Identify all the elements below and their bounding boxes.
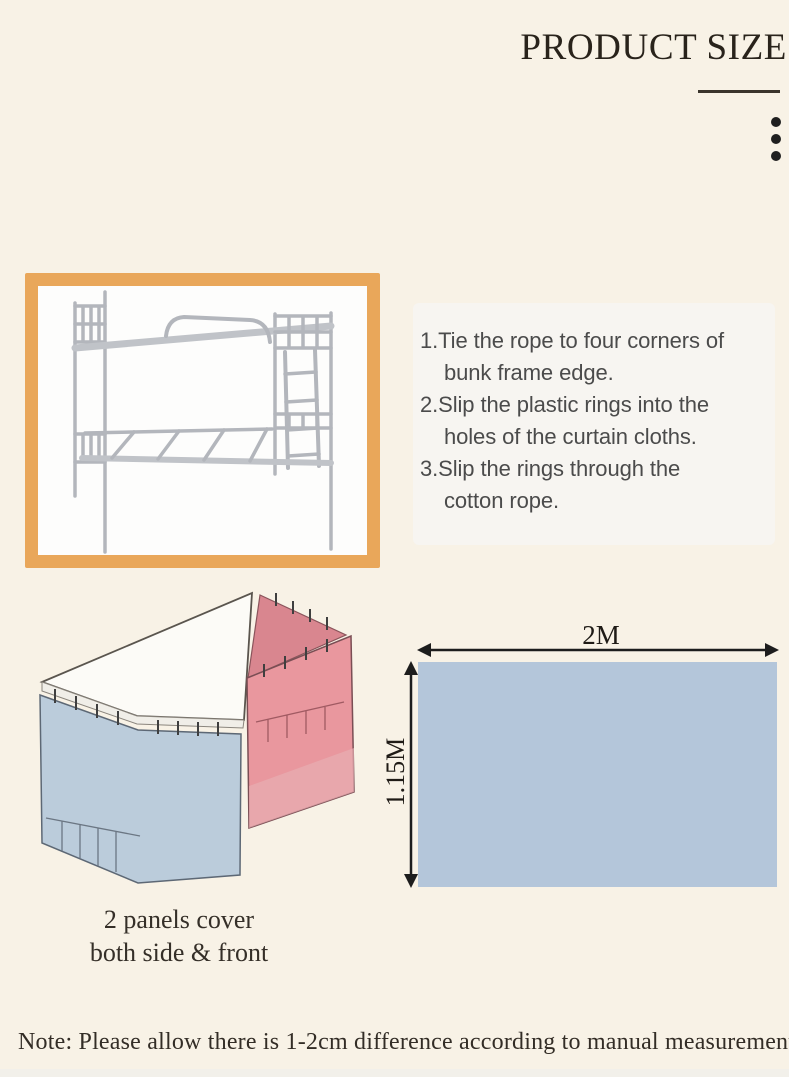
panels-caption: 2 panels cover both side & front xyxy=(48,903,310,969)
headboard-grid xyxy=(75,306,105,342)
dot xyxy=(771,134,781,144)
dot xyxy=(771,117,781,127)
lower-guard-grid xyxy=(275,414,331,428)
bunk-bed-image xyxy=(38,286,367,555)
product-size-page: PRODUCT SIZE xyxy=(0,0,789,1077)
caption-line-2: both side & front xyxy=(48,936,310,969)
width-label: 2M xyxy=(556,620,646,651)
pink-curtain-panel xyxy=(247,636,354,828)
instruction-line: 2.Slip the plastic rings into the xyxy=(420,389,769,421)
title-underline xyxy=(698,90,780,93)
height-label: 1.15M xyxy=(382,727,410,817)
instructions-panel: 1.Tie the rope to four corners of bunk f… xyxy=(413,303,775,545)
dot xyxy=(771,151,781,161)
instruction-line: bunk frame edge. xyxy=(420,357,769,389)
curtain-panels-diagram xyxy=(10,590,395,915)
instruction-line: 1.Tie the rope to four corners of xyxy=(420,325,769,357)
measurement-note: Note: Please allow there is 1-2cm differ… xyxy=(18,1029,778,1056)
instruction-line: cotton rope. xyxy=(420,485,769,517)
ladder-rails xyxy=(285,350,319,468)
product-photo-frame xyxy=(25,273,380,568)
instruction-line: holes of the curtain cloths. xyxy=(420,421,769,453)
instruction-line: 3.Slip the rings through the xyxy=(420,453,769,485)
dimension-arrows xyxy=(395,630,789,900)
ellipsis-dots-icon xyxy=(771,117,782,168)
page-title: PRODUCT SIZE xyxy=(520,26,787,69)
bottom-edge-strip xyxy=(0,1069,789,1077)
headboard-grid xyxy=(275,316,331,348)
caption-line-1: 2 panels cover xyxy=(48,903,310,936)
upper-bunk-beam xyxy=(75,326,331,348)
